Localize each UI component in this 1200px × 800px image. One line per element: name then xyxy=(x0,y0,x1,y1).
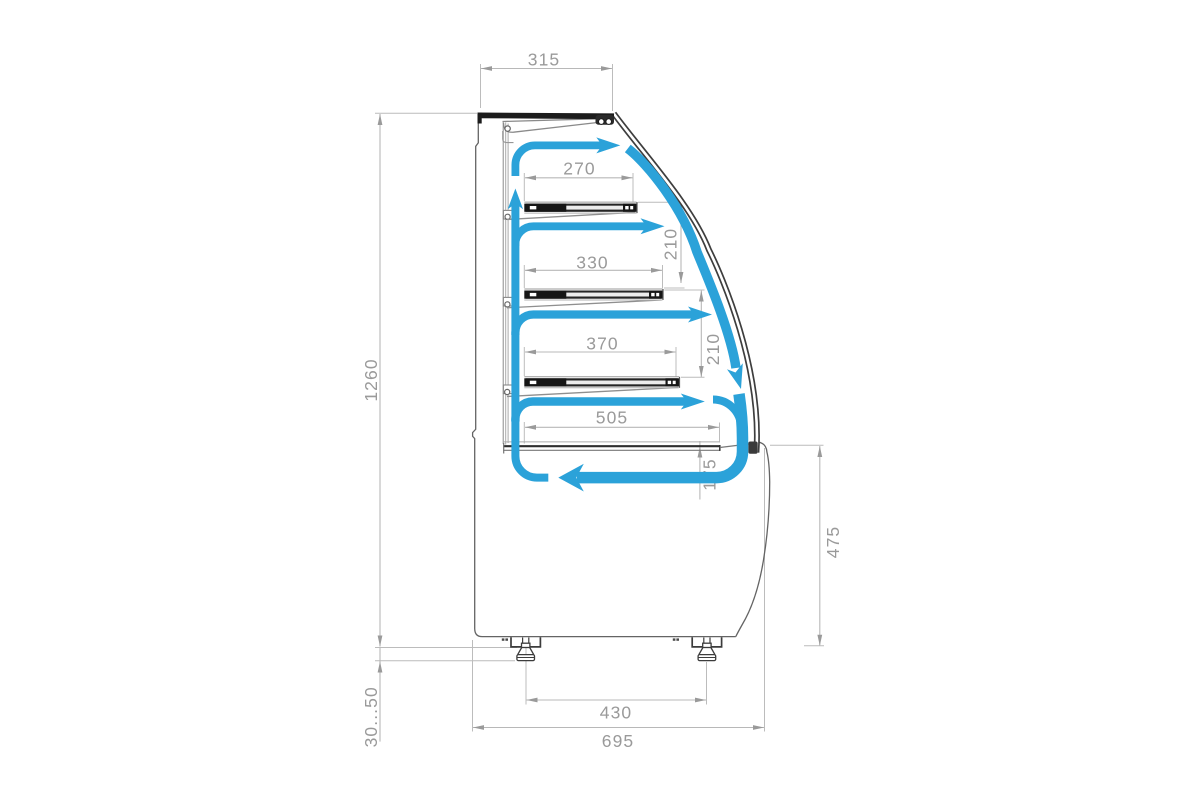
svg-text:330: 330 xyxy=(576,252,609,272)
svg-text:210: 210 xyxy=(661,228,681,261)
svg-text:1260: 1260 xyxy=(361,358,381,401)
svg-text:30...50: 30...50 xyxy=(361,686,381,747)
svg-text:475: 475 xyxy=(823,526,843,559)
svg-text:430: 430 xyxy=(600,703,633,723)
svg-text:210: 210 xyxy=(703,333,723,366)
svg-text:370: 370 xyxy=(586,333,619,353)
svg-text:505: 505 xyxy=(596,408,629,428)
svg-text:695: 695 xyxy=(602,731,635,751)
svg-text:270: 270 xyxy=(563,158,596,178)
svg-text:315: 315 xyxy=(528,50,561,70)
